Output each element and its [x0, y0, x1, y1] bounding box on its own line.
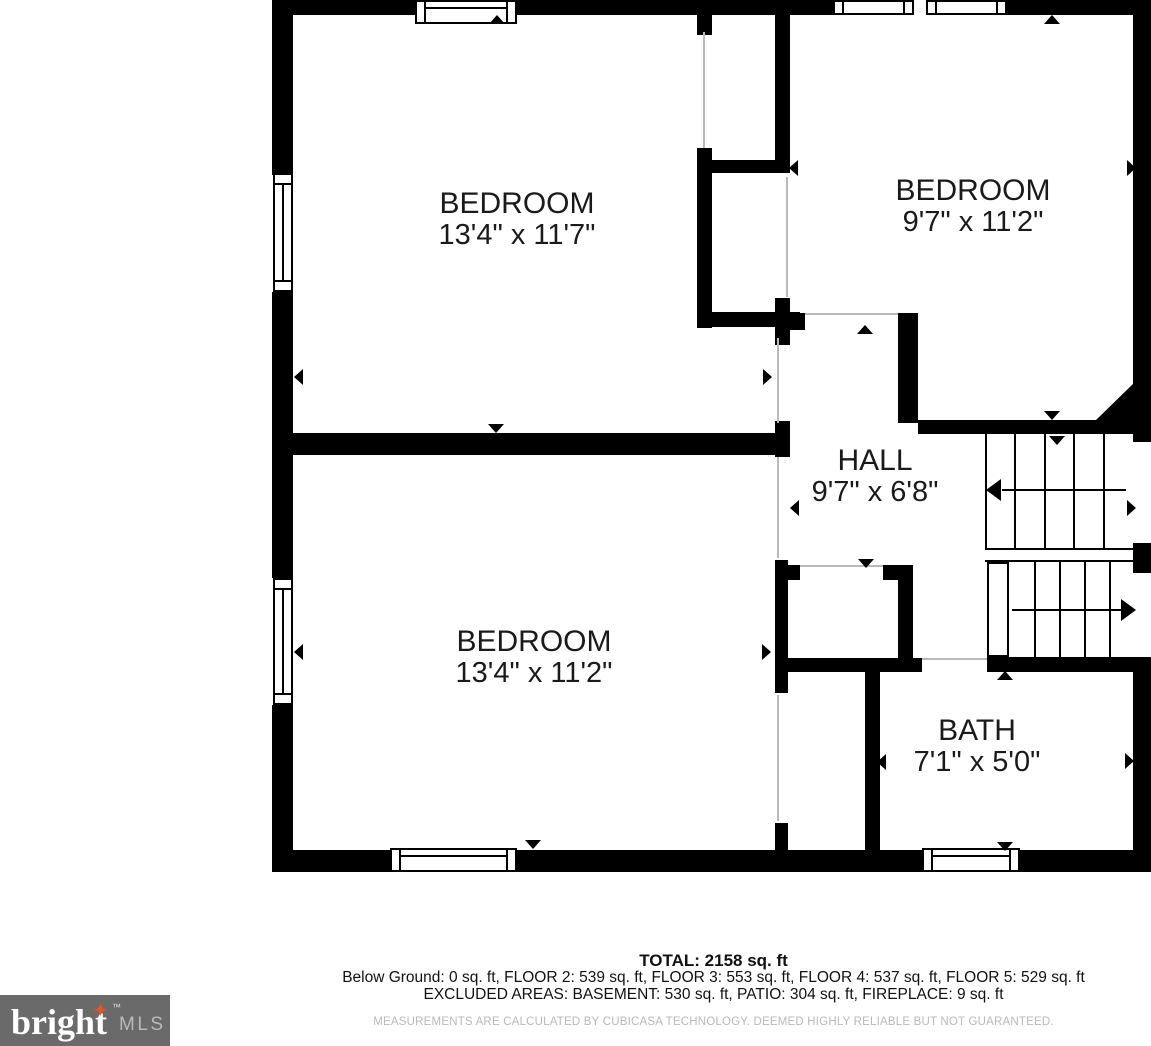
- trademark-symbol: ™: [112, 1002, 121, 1012]
- door-opening: [805, 313, 898, 315]
- room-name: HALL: [725, 444, 1025, 477]
- wall: [898, 565, 913, 672]
- wall: [918, 420, 1151, 434]
- room-name: BEDROOM: [367, 187, 667, 220]
- floor-areas: Below Ground: 0 sq. ft, FLOOR 2: 539 sq.…: [276, 970, 1151, 987]
- room-label-bedroom-top-right: BEDROOM 9'7" x 11'2": [823, 174, 1123, 238]
- room-name: BATH: [827, 714, 1127, 747]
- window: [922, 848, 1020, 872]
- stair-banister: [987, 562, 1009, 657]
- dimension-arrow: [763, 369, 772, 385]
- room-label-hall: HALL 9'7" x 6'8": [725, 444, 1025, 508]
- bright-mls-logo: bright ✦ ™ MLS: [0, 995, 170, 1046]
- wall: [272, 705, 293, 872]
- star-icon: ✦: [92, 998, 109, 1023]
- wall: [790, 313, 805, 330]
- wall: [517, 850, 922, 872]
- dimension-arrow: [1127, 160, 1136, 176]
- wall: [1133, 657, 1151, 872]
- window: [926, 0, 1007, 15]
- wall: [898, 313, 918, 423]
- window: [273, 578, 293, 705]
- stair-tread: [1044, 434, 1046, 548]
- stair-tread: [1103, 434, 1105, 548]
- dimension-arrow: [525, 840, 541, 849]
- window: [390, 848, 517, 872]
- logo-suffix-text: MLS: [119, 1014, 166, 1036]
- room-label-bedroom-top-left: BEDROOM 13'4" x 11'7": [367, 187, 667, 251]
- wall: [775, 13, 790, 173]
- wall: [787, 565, 800, 580]
- room-dimensions: 9'7" x 11'2": [823, 207, 1123, 238]
- wall: [272, 0, 415, 15]
- wall: [987, 657, 1151, 672]
- wall: [787, 658, 922, 672]
- door-opening: [777, 338, 779, 423]
- room-dimensions: 13'4" x 11'7": [367, 220, 667, 251]
- wall: [775, 823, 788, 850]
- dimension-arrow: [488, 424, 504, 433]
- dimension-arrow: [1044, 15, 1060, 24]
- excluded-areas: EXCLUDED AREAS: BASEMENT: 530 sq. ft, PA…: [276, 987, 1151, 1004]
- total-area: TOTAL: 2158 sq. ft: [276, 951, 1151, 970]
- room-label-bedroom-bottom: BEDROOM 13'4" x 11'2": [384, 625, 684, 689]
- area-summary: TOTAL: 2158 sq. ft Below Ground: 0 sq. f…: [276, 951, 1151, 1028]
- room-name: BEDROOM: [823, 174, 1123, 207]
- room-dimensions: 7'1" x 5'0": [827, 747, 1127, 778]
- floor-plan-canvas: BEDROOM 13'4" x 11'7" BEDROOM 9'7" x 11'…: [0, 0, 1151, 1046]
- stair-direction-arrow: [1121, 599, 1136, 621]
- wall: [272, 0, 293, 175]
- room-label-bath: BATH 7'1" x 5'0": [827, 714, 1127, 778]
- dimension-arrow: [997, 842, 1013, 851]
- room-dimensions: 9'7" x 6'8": [725, 477, 1025, 508]
- dimension-arrow: [294, 369, 303, 385]
- dimension-arrow: [294, 644, 303, 660]
- room-dimensions: 13'4" x 11'2": [384, 658, 684, 689]
- wall: [1007, 0, 1151, 15]
- wall: [697, 148, 712, 328]
- door-opening: [777, 695, 779, 821]
- dimension-arrow: [858, 559, 874, 568]
- dimension-arrow: [997, 671, 1013, 680]
- measurement-disclaimer: MEASUREMENTS ARE CALCULATED BY CUBICASA …: [276, 1016, 1151, 1028]
- dimension-arrow: [762, 644, 771, 660]
- dimension-arrow: [1127, 500, 1136, 516]
- stair-landing: [985, 548, 1133, 550]
- stair-tread: [1073, 434, 1075, 548]
- dimension-arrow: [789, 160, 798, 176]
- room-name: BEDROOM: [384, 625, 684, 658]
- door-opening: [703, 32, 705, 148]
- wall: [1133, 0, 1151, 442]
- dimension-arrow: [1044, 411, 1060, 420]
- diagonal-wall: [1095, 382, 1135, 421]
- wall: [1020, 850, 1151, 872]
- dimension-arrow: [489, 15, 505, 24]
- wall: [272, 850, 390, 872]
- wall: [697, 312, 800, 327]
- stair-arrow-line: [1012, 609, 1122, 611]
- window: [833, 0, 914, 15]
- dimension-arrow: [525, 445, 541, 454]
- wall: [1133, 543, 1151, 573]
- window: [273, 173, 293, 292]
- dimension-arrow: [1049, 436, 1065, 445]
- door-opening: [786, 177, 788, 297]
- dimension-arrow: [857, 325, 873, 334]
- door-opening: [922, 658, 987, 660]
